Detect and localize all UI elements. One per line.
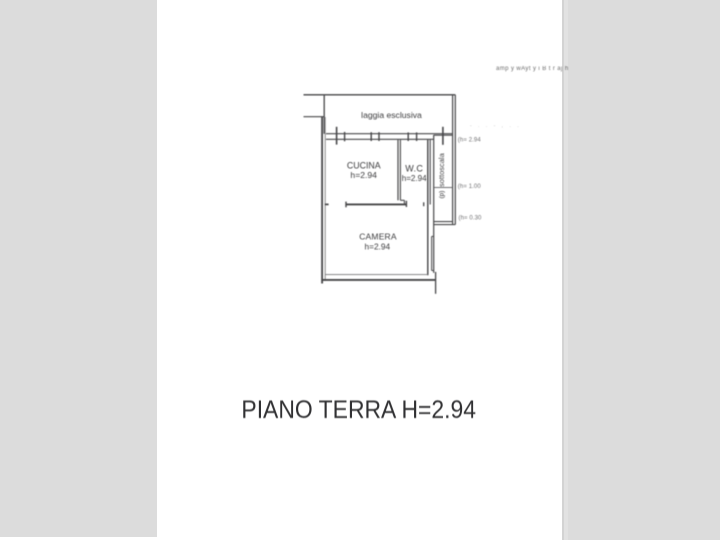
svg-text:PIANO TERRA H=2.94: PIANO TERRA H=2.94 bbox=[241, 396, 476, 424]
svg-text:(h= 1.00: (h= 1.00 bbox=[458, 184, 482, 190]
svg-text:(h= 2.94: (h= 2.94 bbox=[458, 137, 482, 143]
svg-text:W.C: W.C bbox=[405, 163, 423, 173]
svg-text:sottoscala: sottoscala bbox=[437, 152, 446, 187]
svg-text:CUCINA: CUCINA bbox=[347, 161, 381, 171]
svg-text:(p): (p) bbox=[439, 191, 446, 199]
svg-text:h=2.94: h=2.94 bbox=[402, 174, 427, 183]
svg-text:h=2.94: h=2.94 bbox=[364, 242, 390, 252]
svg-text:laggia esclusiva: laggia esclusiva bbox=[361, 110, 422, 120]
svg-text:CAMERA: CAMERA bbox=[359, 232, 397, 242]
svg-text:h=2.94: h=2.94 bbox=[350, 170, 377, 180]
svg-text:(h= 0.30: (h= 0.30 bbox=[459, 216, 483, 222]
